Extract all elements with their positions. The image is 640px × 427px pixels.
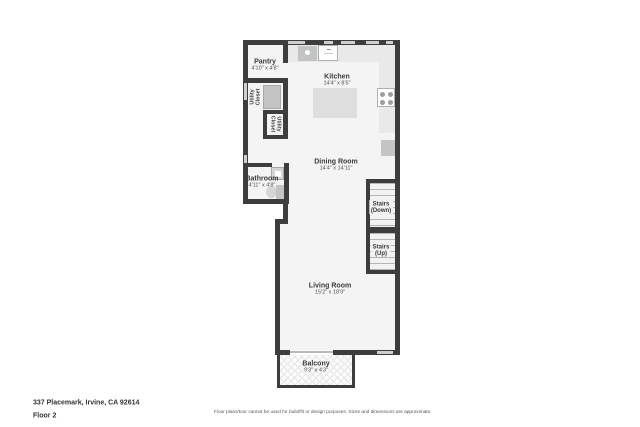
- wall-bathroom-bottom: [243, 199, 288, 204]
- pantry-name: Pantry: [251, 57, 278, 65]
- dining-room-dims: 14'4" x 14'11": [314, 165, 358, 171]
- room-label-dining-room: Dining Room 14'4" x 14'11": [314, 157, 358, 171]
- room-label-utility-closet-b: Utility Closet: [270, 116, 282, 133]
- wall-living-west: [275, 219, 280, 355]
- burner-icon: [388, 92, 393, 97]
- balcony-slider-door: [290, 351, 333, 353]
- address-text: 337 Placemark, Irvine, CA 92614: [33, 398, 139, 406]
- dining-room-name: Dining Room: [314, 157, 358, 165]
- wall-bathroom-top: [243, 163, 272, 167]
- utility-a-line2: Closet: [255, 89, 261, 106]
- wall-balcony-bottom: [277, 385, 355, 388]
- window-segment: [244, 83, 247, 100]
- pantry-dims: 4'10" x 4'8": [251, 65, 278, 71]
- wall-balcony-right: [352, 352, 355, 388]
- room-label-living-room: Living Room 15'2" x 18'9": [309, 281, 351, 295]
- wall-stairs-bottom: [366, 270, 395, 274]
- wall-balcony-left: [277, 352, 280, 388]
- stairs-down-sub: (Down): [371, 207, 391, 214]
- window-segment: [341, 41, 355, 44]
- utility-b-line1: Utility: [276, 116, 282, 133]
- cabinet-box: [381, 140, 395, 156]
- dishwasher-mark: [327, 49, 331, 50]
- wall-stairs-top: [366, 179, 395, 183]
- wall-utility-right: [283, 78, 288, 139]
- window-segment: [366, 41, 379, 44]
- room-label-kitchen: Kitchen 14'4" x 8'5": [323, 72, 350, 86]
- window-segment: [324, 41, 333, 44]
- bathroom-name: Bathroom: [245, 174, 278, 182]
- kitchen-dims: 14'4" x 8'5": [323, 80, 350, 86]
- balcony-name: Balcony: [302, 359, 329, 367]
- kitchen-island: [313, 88, 357, 118]
- wall-bathroom-right: [284, 163, 289, 204]
- room-label-bathroom: Bathroom 4'11" x 4'8": [245, 174, 278, 188]
- window-segment: [244, 155, 247, 163]
- burner-icon: [380, 92, 385, 97]
- dishwasher-mark: [324, 53, 333, 54]
- utility-b-line2: Closet: [270, 116, 276, 133]
- floor-label: Floor 2: [33, 411, 56, 419]
- room-label-utility-closet-a: Utility Closet: [249, 89, 261, 106]
- floorplan-canvas: Pantry 4'10" x 4'8" Kitchen 14'4" x 8'5"…: [0, 0, 640, 427]
- kitchen-name: Kitchen: [323, 72, 350, 80]
- burner-icon: [380, 100, 385, 105]
- burner-icon: [388, 100, 393, 105]
- room-label-stairs-down: Stairs (Down): [369, 200, 392, 214]
- sink-drain-icon: [305, 50, 310, 55]
- window-segment: [377, 351, 393, 354]
- disclaimer-text: Floor plans/tour cannot be used for buil…: [214, 409, 432, 415]
- washer-icon: [263, 85, 281, 109]
- room-label-stairs-up: Stairs (Up): [371, 243, 391, 257]
- wall-right: [395, 40, 400, 355]
- wall-closet-bottom: [263, 135, 288, 139]
- kitchen-sink-icon: [298, 46, 317, 61]
- bathroom-dims: 4'11" x 4'8": [245, 182, 278, 188]
- living-room-dims: 15'2" x 18'9": [309, 289, 351, 295]
- living-room-name: Living Room: [309, 281, 351, 289]
- stove-icon: [377, 88, 395, 107]
- stairs-up-sub: (Up): [373, 250, 390, 257]
- room-label-balcony: Balcony 9'3" x 4'3": [302, 359, 329, 373]
- balcony-dims: 9'3" x 4'3": [302, 367, 329, 373]
- window-segment: [288, 41, 305, 44]
- window-segment: [386, 41, 393, 44]
- wall-stairs-divider: [366, 227, 395, 233]
- dishwasher-icon: [318, 45, 338, 61]
- room-label-pantry: Pantry 4'10" x 4'8": [251, 57, 278, 71]
- wall-pantry-bottom: [243, 78, 288, 83]
